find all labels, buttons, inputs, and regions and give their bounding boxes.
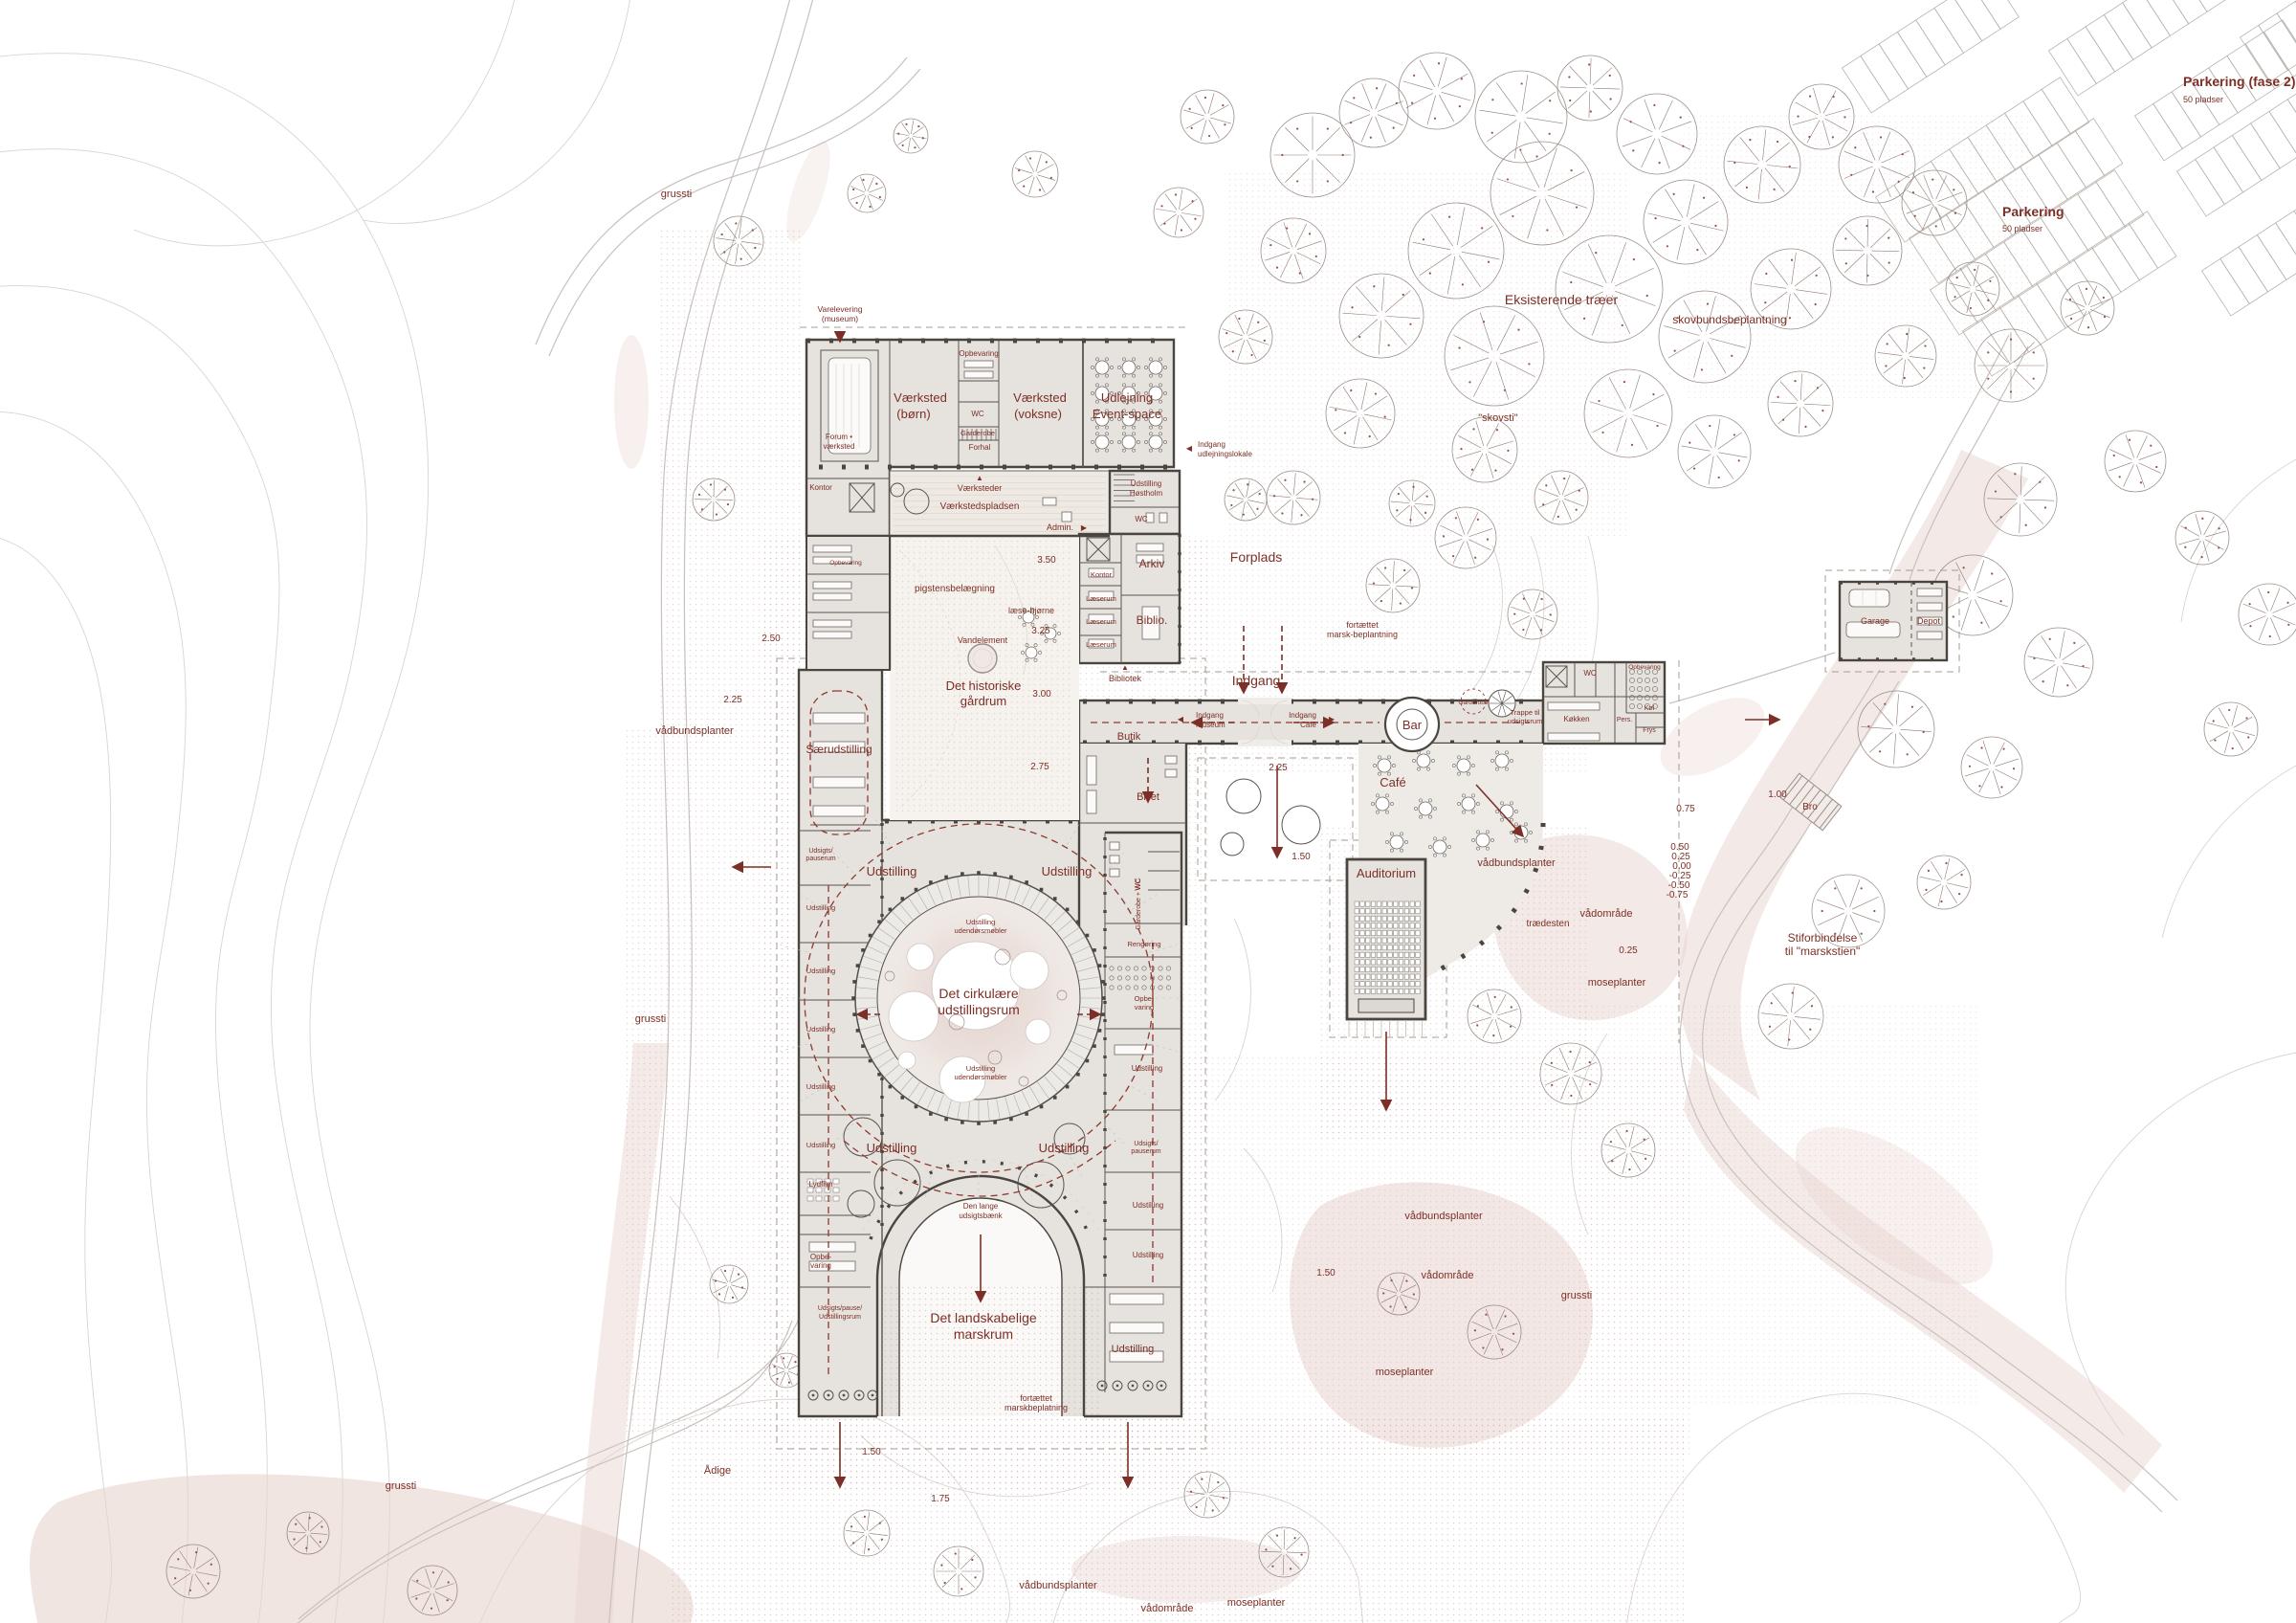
plan-label: Kontor	[809, 483, 832, 492]
plan-label: 2.50	[762, 634, 781, 644]
plan-label: Frys	[1643, 727, 1656, 734]
plan-label: ▲	[1121, 663, 1129, 672]
parking-row	[2135, 20, 2296, 161]
plan-label: Udstilling	[1112, 1344, 1155, 1355]
tree-icon	[894, 119, 928, 153]
plan-label: marskbeplatning	[1004, 1403, 1068, 1412]
plan-label: "skovsti"	[1478, 412, 1518, 424]
plan-label: Det historiske	[946, 678, 1022, 693]
tree-icon	[1339, 78, 1408, 147]
plan-label: Værksted	[894, 390, 947, 405]
plan-label: Parkering (fase 2)	[2183, 74, 2296, 89]
plan-label: udendørsmøbler	[954, 926, 1007, 935]
plan-label: Udstilling	[806, 1082, 835, 1091]
plan-label: værksted	[824, 442, 855, 451]
plan-label: grussti	[386, 1480, 416, 1492]
plan-label: vådbundsplanter	[655, 725, 734, 737]
plan-label: Biblio.	[1137, 613, 1168, 627]
plan-label: Udstilling	[867, 1141, 917, 1155]
plan-label: Opbevaring	[959, 349, 998, 358]
plan-label: Læserum	[1086, 617, 1116, 626]
plan-label: Garderobe	[960, 429, 995, 437]
parking-row	[2202, 199, 2296, 316]
tree-icon	[848, 174, 886, 212]
plan-label: udendørsmøbler	[954, 1073, 1007, 1081]
plan-label: Billet	[1137, 791, 1159, 803]
plan-label: Arkiv	[1139, 557, 1165, 570]
plan-label: Udstilling	[1039, 1141, 1090, 1155]
plan-label: Udsigts/	[1134, 1141, 1158, 1147]
plan-label: Det landskabelige	[930, 1310, 1037, 1325]
tree-icon	[1181, 90, 1234, 144]
plan-label: Høstholm	[1130, 489, 1163, 498]
plan-label: 50 pladser	[2183, 95, 2223, 104]
plan-label: Vandelement	[958, 635, 1008, 645]
plan-label: udstillingsrum	[938, 1002, 1020, 1017]
plan-label: vådområde	[1421, 1270, 1473, 1281]
plan-label: Trappe til	[1511, 708, 1540, 717]
tree-icon	[1475, 71, 1567, 163]
plan-label: (børn)	[896, 407, 930, 421]
plan-label: Garderobe	[1458, 700, 1488, 706]
plan-label: grussti	[1561, 1290, 1592, 1301]
tree-icon	[2105, 431, 2166, 492]
plan-label: 0.25	[1619, 945, 1638, 956]
plan-label: udsigtsrum	[1508, 717, 1543, 725]
tree-icon	[1012, 151, 1058, 197]
site-plan: grusstiParkering (fase 2)50 pladserParke…	[0, 0, 2296, 1623]
plan-label: gårdrum	[960, 694, 1006, 708]
parking-row	[1843, 0, 2020, 113]
plan-label: Rengøring	[1127, 940, 1160, 948]
plan-label: ◀	[1178, 715, 1184, 723]
plan-label: Udstilling	[1133, 1251, 1163, 1259]
plan-label: Udstilling	[1042, 864, 1093, 878]
plan-label: fortættet	[1020, 1393, 1052, 1403]
site-plan-svg: grusstiParkering (fase 2)50 pladserParke…	[0, 0, 2296, 1623]
plan-label: ▲	[976, 474, 983, 482]
plan-label: WC	[1135, 515, 1148, 523]
tree-icon	[2175, 511, 2229, 565]
plan-label: Udstilling	[806, 967, 835, 975]
plan-label: Opbe-	[1135, 994, 1155, 1003]
plan-label: udsigtsbænk	[959, 1212, 1003, 1220]
plan-label: 2.25	[723, 695, 742, 705]
plan-label: vådområde	[1579, 908, 1632, 920]
plan-label: 3.00	[1032, 689, 1051, 700]
plan-label: grussti	[661, 189, 692, 200]
plan-label: Læserum	[1086, 594, 1116, 603]
plan-label: Værkstedspladsen	[940, 501, 1020, 512]
plan-label: Varelevering	[817, 304, 862, 314]
plan-label: marskrum	[954, 1326, 1013, 1342]
plan-label: 1.50	[1316, 1268, 1336, 1278]
plan-label: Udstilling	[867, 864, 917, 878]
plan-label: ▶	[1329, 715, 1336, 723]
plan-label: Museum	[1196, 721, 1225, 729]
tree-icon	[1917, 856, 1971, 909]
plan-label: Forum •	[826, 433, 852, 441]
plan-label: Køl	[1645, 705, 1655, 712]
plan-label: Værksted	[1013, 390, 1067, 405]
tree-icon	[1399, 53, 1475, 129]
plan-label: læse-hjørne	[1008, 606, 1054, 615]
plan-label: Udsigts/pause/	[818, 1305, 862, 1312]
plan-label: Admin.	[1047, 522, 1073, 532]
plan-label: moseplanter	[1376, 1367, 1434, 1378]
plan-label: Café	[1380, 775, 1405, 789]
plan-label: Indgang	[1198, 440, 1225, 449]
plan-label: (museum)	[822, 314, 858, 323]
plan-label: 2.25	[1269, 763, 1288, 773]
plan-label: 1.75	[931, 1494, 950, 1504]
plan-label: marsk-beplantning	[1327, 630, 1398, 639]
plan-label: varing	[1135, 1003, 1154, 1012]
plan-label: Det cirkulære	[938, 986, 1018, 1001]
plan-label: Ådige	[704, 1464, 731, 1477]
plan-label: Event-space	[1093, 407, 1161, 421]
plan-label: Indgang	[1289, 711, 1316, 720]
plan-label: Udlejning	[1101, 390, 1153, 405]
plan-label: Pers.	[1617, 717, 1632, 723]
plan-label: 0.75	[1676, 804, 1695, 814]
plan-label: Køkken	[1563, 715, 1589, 723]
plan-label: vådbundsplanter	[1477, 857, 1556, 869]
plan-label: moseplanter	[1588, 977, 1646, 989]
plan-label: Stiforbindelse	[1788, 931, 1858, 945]
plan-label: Indgang	[1196, 711, 1224, 720]
plan-label: pauserum	[1131, 1148, 1160, 1155]
plan-label: Bro	[1802, 802, 1818, 812]
plan-label: Auditorium	[1357, 866, 1416, 880]
plan-label: ◀	[1186, 444, 1193, 453]
tree-icon	[1557, 56, 1623, 121]
plan-label: varing	[810, 1261, 831, 1270]
plan-label: Udstilling	[806, 1025, 835, 1034]
plan-label: 1.00	[1768, 789, 1787, 800]
plan-label: (voksne)	[1014, 407, 1062, 421]
plan-label: moseplanter	[1227, 1597, 1286, 1609]
plan-label: vådområde	[1140, 1603, 1193, 1614]
plan-label: pigstensbelægning	[915, 584, 995, 594]
plan-label: ▶	[1081, 523, 1088, 532]
plan-label: 3.50	[1037, 555, 1056, 566]
plan-label: -0.75	[1667, 890, 1689, 900]
plan-label: Udstilling	[1133, 1201, 1163, 1210]
plan-label: til "marskstien"	[1785, 945, 1861, 958]
plan-label: Læserum	[1086, 640, 1116, 649]
plan-label: grussti	[635, 1013, 666, 1025]
plan-label: WC	[1583, 669, 1597, 678]
plan-label: Garderobe + WC	[1136, 878, 1142, 929]
plan-label: Butik	[1117, 731, 1141, 743]
plan-label: Depot	[1917, 616, 1941, 626]
plan-label: trædesten	[1526, 919, 1569, 929]
building-storage-wing	[806, 536, 890, 670]
plan-label: Udstillingsrum	[819, 1314, 861, 1321]
plan-label: Udstilling	[1131, 479, 1161, 488]
plan-label: udlejningslokale	[1198, 450, 1252, 458]
plan-label: Den lange	[963, 1202, 999, 1211]
plan-label: 2.75	[1030, 762, 1049, 772]
tree-icon	[2239, 584, 2296, 645]
plan-label: skovbundsbeplantning	[1672, 313, 1786, 326]
plan-label: Eksisterende træer	[1505, 292, 1619, 307]
plan-label: Lydfilm	[808, 1180, 832, 1189]
plan-label: Bar	[1402, 718, 1423, 732]
plan-label: Udstilling	[806, 1141, 835, 1149]
plan-label: 1.50	[862, 1447, 881, 1457]
tree-icon	[1678, 415, 1751, 488]
plan-label: pauserum	[806, 856, 835, 862]
parking-row	[2241, 0, 2296, 82]
plan-label: Udstilling	[966, 918, 995, 926]
plan-label: Parkering	[2002, 204, 2064, 219]
plan-label: Udstilling	[806, 903, 835, 912]
plan-label: Udstilling	[1132, 1064, 1162, 1073]
plan-label: Bibliotek	[1109, 674, 1142, 683]
plan-label: Garage	[1861, 616, 1889, 626]
plan-label: Forplads	[1230, 549, 1282, 565]
plan-label: 1.50	[1291, 852, 1311, 862]
plan-label: Forhal	[969, 443, 991, 452]
plan-label: Opbevaring	[829, 560, 862, 567]
tree-icon	[2024, 628, 2093, 697]
plan-label: 3.25	[1031, 626, 1050, 636]
plan-label: Opbevaring	[1628, 664, 1661, 671]
tree-icon	[2204, 702, 2258, 756]
plan-label: WC	[971, 410, 984, 418]
plan-label: Særudstilling	[806, 743, 872, 756]
tree-icon	[1961, 737, 2022, 798]
plan-label: Udsigts/	[808, 848, 832, 855]
plan-label: Indgang	[1232, 673, 1281, 688]
plan-label: vådbundsplanter	[1404, 1211, 1483, 1222]
tree-icon	[2061, 281, 2114, 335]
plan-label: Værksteder	[958, 483, 1003, 493]
plan-label: vådbundsplanter	[1019, 1580, 1097, 1591]
plan-label: Udstilling	[966, 1064, 995, 1073]
tree-icon	[1154, 188, 1203, 237]
plan-label: Café	[1300, 721, 1316, 729]
plan-label: fortættet	[1346, 620, 1379, 630]
plan-label: Kontor	[1091, 570, 1113, 579]
plan-label: 50 pladser	[2002, 224, 2042, 233]
plan-label: Opbe-	[810, 1253, 832, 1261]
